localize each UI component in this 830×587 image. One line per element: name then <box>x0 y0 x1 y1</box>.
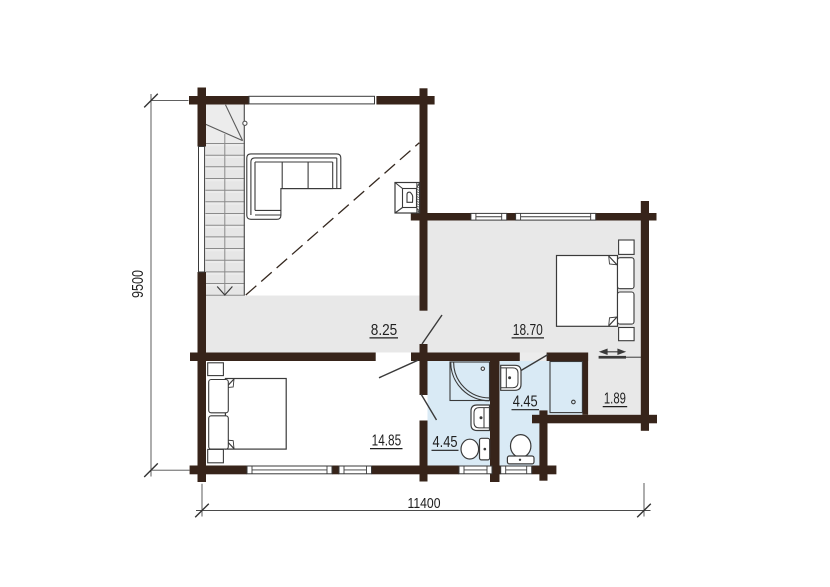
svg-text:14.85: 14.85 <box>372 432 402 449</box>
svg-text:9500: 9500 <box>130 270 147 298</box>
svg-text:8.25: 8.25 <box>371 322 398 339</box>
svg-text:1.89: 1.89 <box>604 390 626 407</box>
svg-text:4.45: 4.45 <box>433 434 458 451</box>
svg-text:18.70: 18.70 <box>513 322 543 339</box>
svg-text:11400: 11400 <box>408 495 441 512</box>
svg-text:4.45: 4.45 <box>513 393 538 410</box>
